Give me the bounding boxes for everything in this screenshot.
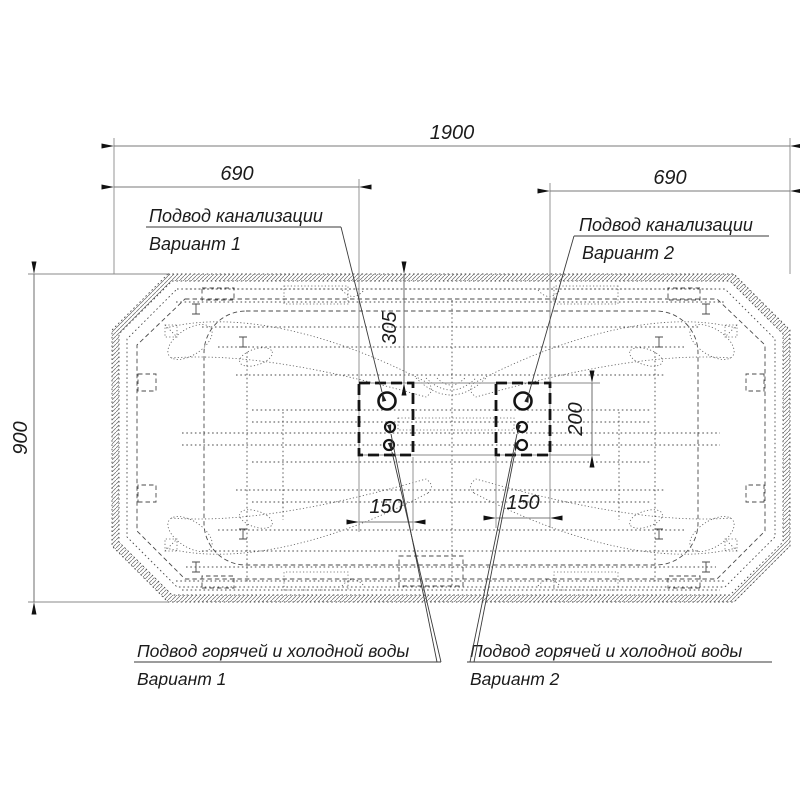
dimension-150-left-value: 150 bbox=[369, 496, 402, 518]
deck-contour bbox=[137, 299, 765, 579]
dimension-200-value: 200 bbox=[565, 402, 587, 436]
dimension-150-right-value: 150 bbox=[506, 492, 539, 514]
dimension-305: 305 bbox=[379, 274, 404, 383]
rim-contour-2 bbox=[119, 281, 783, 595]
dimension-1900: 1900 bbox=[114, 122, 790, 146]
callout-water-v2-line1: Подвод горячей и холодной воды bbox=[470, 641, 742, 661]
rim-contour-3 bbox=[127, 289, 775, 587]
sewer-outlet-variant-1 bbox=[379, 393, 396, 410]
pump-unit bbox=[399, 556, 463, 586]
seat-motif-top-right bbox=[470, 286, 764, 397]
dimension-305-value: 305 bbox=[379, 310, 401, 344]
hot-water-outlet-variant-1 bbox=[385, 422, 395, 432]
callout-water-v2-line2: Вариант 2 bbox=[470, 669, 560, 689]
leader-sewer-v1 bbox=[341, 227, 382, 392]
rim-hatch-band bbox=[112, 274, 790, 602]
hidden-lines-vertical bbox=[247, 300, 655, 586]
leader-water-v1-cold bbox=[392, 452, 441, 662]
callout-water-variant-2: Подвод горячей и холодной воды Вариант 2 bbox=[467, 434, 772, 689]
connection-zone-variant-1 bbox=[359, 383, 413, 455]
technical-drawing-canvas: 1900 690 690 900 305 200 150 150 Подвод … bbox=[0, 0, 800, 800]
outer-contour bbox=[112, 274, 790, 602]
leader-sewer-v2 bbox=[529, 236, 574, 393]
extension-lines bbox=[28, 138, 790, 602]
dimension-900: 900 bbox=[10, 274, 34, 602]
callout-sewer-v1-line1: Подвод канализации bbox=[149, 206, 323, 226]
overflow-bumps bbox=[342, 290, 560, 586]
callout-sewer-v2-line2: Вариант 2 bbox=[582, 243, 674, 263]
dimension-900-value: 900 bbox=[10, 421, 32, 454]
bathtub-plan bbox=[112, 274, 790, 602]
bowl-contour bbox=[204, 311, 698, 565]
cold-water-outlet-variant-2 bbox=[517, 440, 527, 450]
callout-sewer-v2-line1: Подвод канализации bbox=[579, 215, 753, 235]
dimension-690-left-value: 690 bbox=[220, 163, 253, 185]
central-drain-arcs bbox=[416, 378, 486, 395]
dimension-690-left: 690 bbox=[114, 163, 359, 187]
callout-water-v1-line2: Вариант 1 bbox=[137, 669, 226, 689]
callout-water-v1-line1: Подвод горячей и холодной воды bbox=[137, 641, 409, 661]
dimension-690-right: 690 bbox=[550, 167, 790, 191]
callout-water-variant-1: Подвод горячей и холодной воды Вариант 1 bbox=[134, 434, 441, 689]
leader-water-v2-cold bbox=[474, 452, 515, 662]
dimension-690-right-value: 690 bbox=[653, 167, 686, 189]
leader-water-v2-hot bbox=[470, 434, 517, 662]
bathtub-installation-drawing: 1900 690 690 900 305 200 150 150 Подвод … bbox=[0, 0, 800, 800]
hot-water-outlet-variant-2 bbox=[517, 422, 527, 432]
sewer-outlet-variant-2 bbox=[515, 393, 532, 410]
dimension-1900-value: 1900 bbox=[430, 122, 475, 144]
dimension-200: 200 bbox=[565, 383, 592, 455]
hidden-lines-horizontal bbox=[176, 289, 726, 590]
callout-sewer-v1-line2: Вариант 1 bbox=[149, 234, 241, 254]
connection-zone-variant-2 bbox=[496, 383, 550, 455]
